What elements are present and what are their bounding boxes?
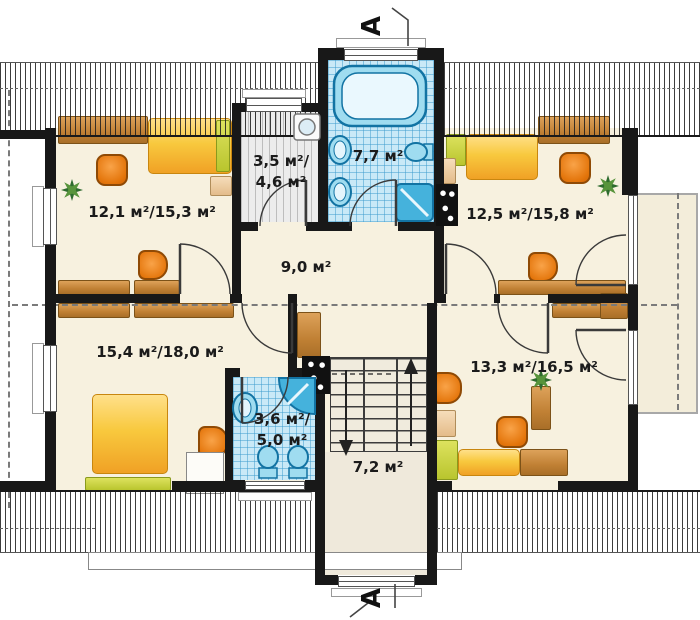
lower-roof-outline [88,552,462,570]
wall-segment [494,294,500,303]
room-label-bedroom-bottom-right: 13,3 м²/16,5 м² [470,358,598,376]
wall-segment [548,294,628,303]
office-chair [496,416,528,448]
ridge-line [12,304,677,306]
wall-segment [232,103,246,112]
sideboard [458,449,520,476]
window-sill [242,89,306,98]
built-in-wardrobe [134,280,180,295]
office-chair [559,152,591,184]
wall-segment [45,128,56,188]
wall-segment [0,481,45,490]
roof-edge-line [0,528,95,529]
window [246,98,302,112]
room-label-hall: 9,0 м² [281,258,332,276]
wall-segment [558,481,638,490]
wall-segment [427,303,437,585]
wall-segment [318,48,344,60]
wall-segment [434,294,446,303]
wall-segment [418,48,444,60]
wall-segment [415,575,437,585]
wall-segment [437,481,452,490]
hall-cabinet [297,312,321,358]
stair-divider [396,357,398,452]
window [344,49,418,61]
wall-segment [622,128,638,195]
roof-edge-line [444,88,700,89]
room-label-wardrobe-line1: 3,5 м²/ [253,151,309,172]
wall-segment [45,412,56,490]
roof-hatch-top-right [444,62,700,137]
nightstand [210,176,232,196]
eave-line-right [677,193,679,410]
wall-segment [306,222,352,231]
roof-hatch-bottom-right [437,490,700,553]
room-label-bedroom-top-left: 12,1 м²/15,3 м² [88,203,216,221]
bathroom-top-floor [328,60,434,222]
wall-segment [232,222,258,231]
chair [528,252,558,282]
room-label-bathroom-top: 7,7 м² [353,147,404,165]
window [245,481,305,490]
room-label-bathroom-bottom-line1: 3,6 м²/ [254,409,310,430]
double-bed [92,394,168,474]
window [43,345,57,412]
window-sill [238,492,312,501]
chimney [302,356,330,394]
wall-segment [50,294,180,303]
stair-treads [330,357,427,452]
room-label-bedroom-top-right: 12,5 м²/15,8 м² [466,205,594,223]
wall-segment [315,575,338,585]
chair [138,250,168,280]
bed [466,134,538,180]
built-in-wardrobe [58,280,130,295]
wall-segment [230,294,242,303]
wall-segment [232,106,241,303]
wall-segment [434,48,444,294]
room-label-bathroom-bottom: 3,6 м²/ 5,0 м² [254,409,310,451]
room-label-bedroom-bottom-left: 15,4 м²/18,0 м² [96,343,224,361]
wall-segment [628,285,638,330]
floor-plan: 12,1 м²/15,3 м² 3,5 м²/ 4,6 м² 7,7 м² 12… [0,0,700,620]
room-label-bathroom-bottom-line2: 5,0 м² [254,430,310,451]
desk [520,449,568,476]
balcony-door-glazing [628,195,638,285]
wall-segment [628,405,638,490]
roof-edge-line [437,528,700,529]
wall-segment [315,368,325,585]
section-marker-top: A [357,11,387,41]
room-label-wardrobe-line2: 4,6 м² [253,172,309,193]
wall-segment [172,481,233,490]
chimney [436,184,458,226]
office-chair [96,154,128,186]
plant-pedestal [531,386,551,430]
eave-line-left [8,90,10,508]
stair-divider [363,357,365,452]
wall-segment [0,130,45,139]
room-label-wardrobe: 3,5 м²/ 4,6 м² [253,151,309,193]
wall-segment [288,294,297,377]
wall-segment [318,48,328,231]
section-marker-bottom: A [357,583,387,613]
wall-segment [302,103,318,112]
window [43,188,57,245]
headboard [85,477,171,491]
room-label-staircase: 7,2 м² [353,458,404,476]
wall-segment [225,480,245,490]
wall-segment [225,368,233,490]
balcony-door-glazing [628,330,638,405]
